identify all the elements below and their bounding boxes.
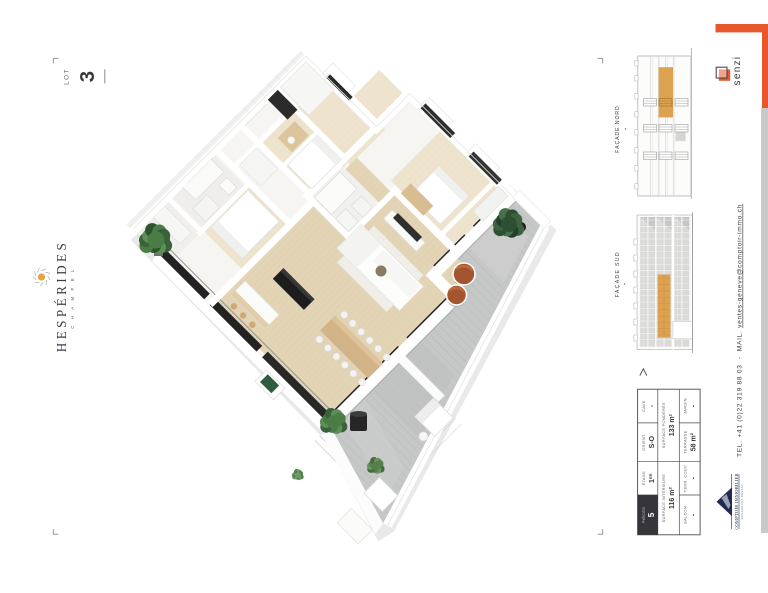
svg-text:CHAMPEL: CHAMPEL [70, 263, 75, 329]
svg-text:1ER: 1ER [648, 473, 656, 483]
svg-text:-: - [691, 404, 698, 407]
svg-text:SURFACE INTÉRIEURE: SURFACE INTÉRIEURE [661, 474, 666, 523]
svg-text:FAÇADE NORD: FAÇADE NORD [615, 105, 621, 152]
svg-text:S-O: S-O [649, 435, 656, 448]
svg-text:SURFACE PONDÉRÉE: SURFACE PONDÉRÉE [661, 402, 666, 448]
svg-text:ORIENT.: ORIENT. [641, 433, 646, 450]
svg-text:JARDIN: JARDIN [683, 398, 688, 414]
svg-text:HESPÉRIDES: HESPÉRIDES [54, 240, 69, 352]
svg-text:133 m²: 133 m² [669, 413, 676, 436]
svg-text:3: 3 [76, 71, 99, 82]
svg-text:CAVE: CAVE [641, 400, 646, 412]
svg-text:-: - [691, 476, 698, 479]
svg-text:PIÈCES: PIÈCES [641, 507, 646, 523]
svg-text:TERR. COUV.: TERR. COUV. [683, 464, 688, 492]
svg-text:BALCON: BALCON [683, 506, 688, 524]
svg-text:5: 5 [647, 512, 656, 517]
svg-text:-: - [691, 513, 698, 516]
svg-text:REGARDONS DEVANT: REGARDONS DEVANT [740, 484, 744, 520]
svg-text:TEL. +41 (0)22 319 88 03 - M: TEL. +41 (0)22 319 88 03 - MAIL. ventes-… [737, 204, 744, 457]
svg-text:COMPTOIR IMMOBILIER: COMPTOIR IMMOBILIER [734, 472, 739, 530]
svg-text:ÉTAGE: ÉTAGE [641, 471, 646, 486]
svg-text:LOT: LOT [64, 68, 71, 85]
svg-text:FAÇADE SUD: FAÇADE SUD [615, 251, 621, 297]
svg-text:116 m²: 116 m² [669, 487, 676, 509]
svg-text:58 m²: 58 m² [691, 432, 698, 451]
svg-text:TERRASSE: TERRASSE [683, 430, 688, 453]
svg-text:-: - [649, 404, 656, 407]
svg-text:senzi: senzi [732, 56, 743, 86]
